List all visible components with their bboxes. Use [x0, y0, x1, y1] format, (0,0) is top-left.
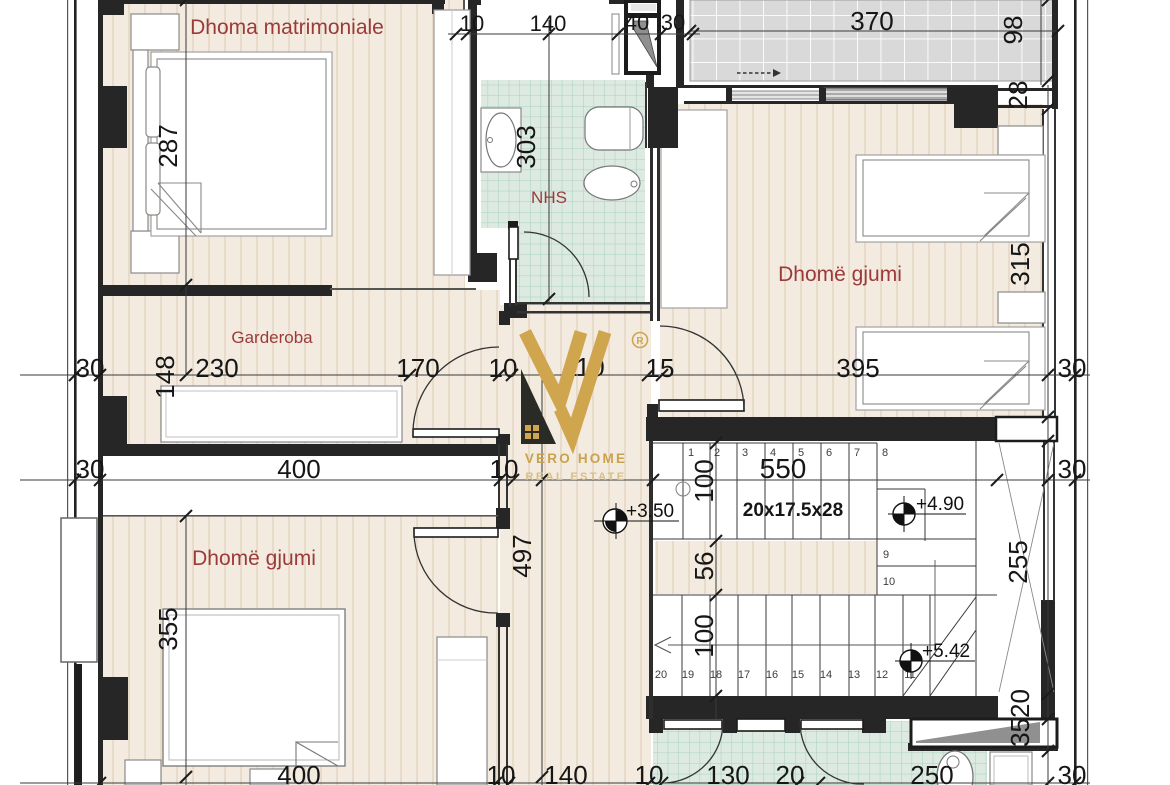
svg-text:REAL ESTATE: REAL ESTATE [526, 471, 627, 483]
svg-text:8: 8 [882, 447, 888, 459]
svg-text:20: 20 [776, 760, 805, 785]
svg-text:10: 10 [460, 11, 484, 36]
svg-text:10: 10 [883, 576, 895, 588]
svg-text:16: 16 [766, 669, 778, 681]
svg-text:140: 140 [530, 11, 567, 36]
svg-text:315: 315 [1005, 242, 1035, 285]
svg-text:3520: 3520 [1005, 689, 1035, 747]
svg-text:10: 10 [487, 760, 516, 785]
svg-text:VERO HOME: VERO HOME [525, 451, 627, 466]
svg-text:12: 12 [876, 669, 888, 681]
svg-text:+4.90: +4.90 [916, 494, 964, 515]
svg-text:400: 400 [277, 760, 320, 785]
svg-text:287: 287 [153, 124, 183, 167]
svg-text:20: 20 [655, 669, 667, 681]
svg-text:17: 17 [738, 669, 750, 681]
svg-text:30: 30 [76, 353, 105, 383]
svg-text:NHS: NHS [531, 188, 567, 207]
svg-text:30: 30 [1058, 454, 1087, 484]
svg-text:13: 13 [848, 669, 860, 681]
svg-text:7: 7 [854, 447, 860, 459]
svg-text:Garderoba: Garderoba [231, 328, 313, 347]
svg-text:30: 30 [1058, 760, 1087, 785]
svg-text:148: 148 [150, 355, 180, 398]
svg-text:250: 250 [910, 760, 953, 785]
svg-text:497: 497 [507, 534, 537, 577]
svg-text:15: 15 [646, 353, 675, 383]
svg-text:40: 40 [625, 10, 649, 35]
svg-text:10: 10 [635, 760, 664, 785]
svg-text:56: 56 [689, 552, 719, 581]
svg-text:30: 30 [661, 10, 685, 35]
svg-text:100: 100 [689, 614, 719, 657]
svg-text:395: 395 [836, 353, 879, 383]
svg-text:30: 30 [1058, 353, 1087, 383]
svg-text:3: 3 [742, 447, 748, 459]
svg-text:400: 400 [277, 454, 320, 484]
svg-text:550: 550 [760, 453, 807, 484]
svg-text:+5.42: +5.42 [922, 641, 970, 662]
svg-text:100: 100 [689, 459, 719, 502]
svg-text:Dhomë gjumi: Dhomë gjumi [778, 263, 902, 286]
svg-text:6: 6 [826, 447, 832, 459]
svg-text:Dhoma matrimoniale: Dhoma matrimoniale [190, 16, 384, 39]
svg-text:130: 130 [706, 760, 749, 785]
svg-text:14: 14 [820, 669, 832, 681]
svg-text:2: 2 [714, 447, 720, 459]
svg-text:15: 15 [792, 669, 804, 681]
svg-text:9: 9 [883, 549, 889, 561]
svg-text:19: 19 [682, 669, 694, 681]
svg-text:20x17.5x28: 20x17.5x28 [743, 500, 843, 521]
svg-text:28: 28 [1003, 81, 1033, 110]
svg-text:1: 1 [688, 447, 694, 459]
svg-text:370: 370 [850, 6, 893, 36]
svg-text:R: R [636, 336, 644, 347]
svg-text:10: 10 [490, 454, 519, 484]
svg-text:170: 170 [396, 353, 439, 383]
svg-text:303: 303 [511, 125, 541, 168]
svg-text:+3.50: +3.50 [626, 501, 674, 522]
svg-text:10: 10 [489, 353, 518, 383]
svg-text:30: 30 [76, 454, 105, 484]
svg-text:255: 255 [1003, 540, 1033, 583]
svg-text:Dhomë gjumi: Dhomë gjumi [192, 547, 316, 570]
svg-text:98: 98 [998, 16, 1028, 45]
svg-text:140: 140 [544, 760, 587, 785]
svg-text:230: 230 [195, 353, 238, 383]
svg-text:355: 355 [153, 607, 183, 650]
